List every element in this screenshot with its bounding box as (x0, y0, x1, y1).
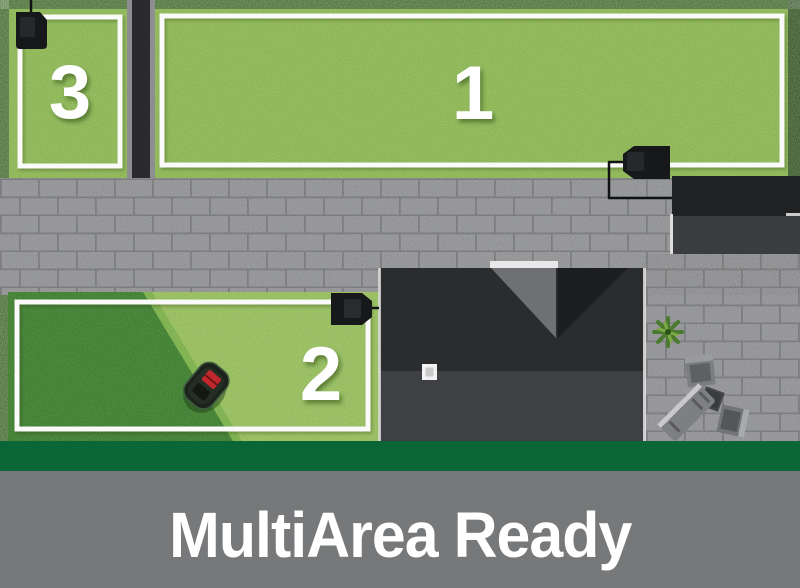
potted-plant (654, 318, 682, 346)
house-roof (378, 261, 646, 441)
multiarea-graphic: 3 1 2 MultiArea Ready (0, 0, 800, 588)
garage-roof (670, 176, 800, 254)
roof-valley-edge (490, 261, 558, 268)
zone-1-label: 1 (452, 51, 494, 136)
zone-2-label: 2 (300, 332, 342, 417)
accent-bar (0, 441, 800, 471)
banner-title: MultiArea Ready (169, 498, 631, 572)
patio-chair-2 (716, 404, 749, 437)
zone-3-label: 3 (49, 50, 91, 135)
garden-aerial-scene: 3 1 2 (0, 0, 800, 441)
garden-path (127, 0, 155, 180)
banner: MultiArea Ready (0, 471, 800, 588)
chimney (422, 364, 437, 380)
patio-chair (685, 354, 716, 388)
